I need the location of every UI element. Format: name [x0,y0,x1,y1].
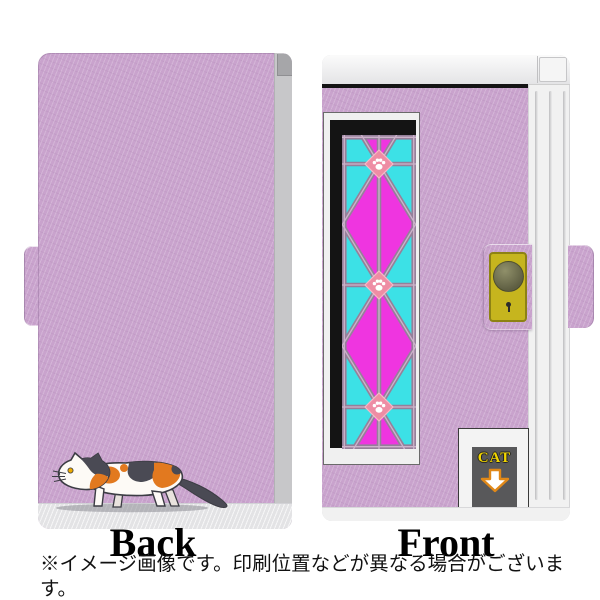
window-frame [323,112,420,465]
clasp-strap-tip [568,245,594,328]
back-case [38,53,292,529]
cat-label-panel: CAT [472,447,517,509]
front-top-edge-bar [322,55,570,85]
window-black-frame [330,120,416,448]
asanoha-pattern [342,135,416,449]
snap-circle [493,261,524,292]
cat-illustration [52,450,260,518]
note-line-1: ※イメージ画像です。印刷位置などが異なる場合がございます。 [40,552,600,600]
product-image: CAT Back Front ※イメージ画像です。印刷位置などが異なる場合がござ… [0,0,600,600]
page-edge-groove [549,91,552,500]
top-bar-divider [537,56,538,83]
edge-notch [277,54,292,76]
top-corner-square [539,57,567,82]
cat-label-text: CAT [472,450,517,467]
page-edge-groove [563,91,566,500]
clasp-strap [483,244,532,330]
page-edge-groove [535,91,538,500]
cat-label: CAT [458,428,529,508]
page-edge-strip [274,53,292,529]
down-arrow-icon [472,468,517,498]
calico-cat-icon [52,450,260,518]
disclaimer-notes: ※イメージ画像です。印刷位置などが異なる場合がございます。 ※Back側には機種… [40,552,600,600]
front-case: CAT [322,55,570,521]
clasp-snap-button [489,252,527,322]
